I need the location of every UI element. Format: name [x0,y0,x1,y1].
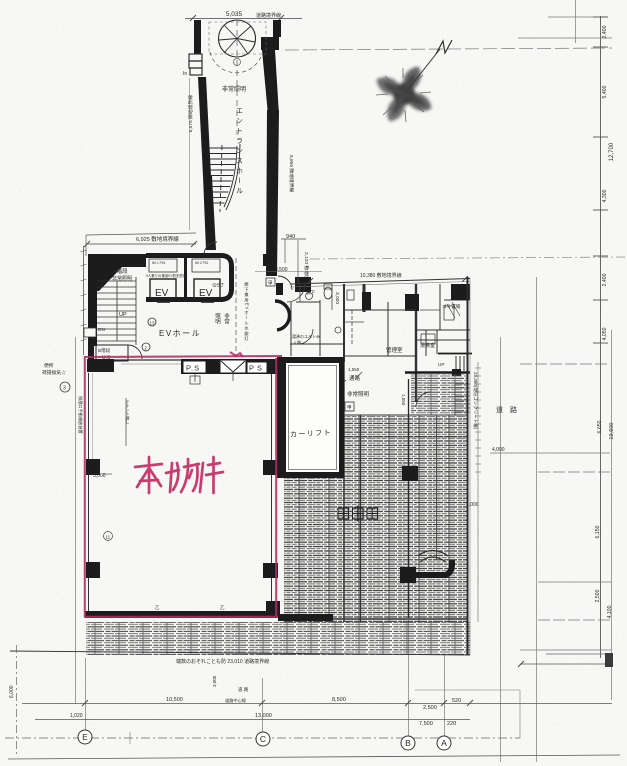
svg-text:3: 3 [63,386,66,392]
svg-text:乙: 乙 [155,604,160,610]
svg-text:テナント渡し: テナント渡し [126,399,131,424]
svg-text:A: A [441,738,447,748]
svg-text:2,400: 2,400 [602,25,608,38]
svg-text:2,400: 2,400 [602,273,608,286]
svg-text:6,650: 6,650 [597,420,603,433]
svg-text:4,300: 4,300 [602,189,608,202]
svg-text:7,500: 7,500 [419,721,433,727]
svg-text:2,500: 2,500 [595,589,601,602]
svg-text:EV: EV [155,288,169,299]
svg-text:A階段: A階段 [113,267,128,275]
svg-text:9人乗りの乗用EV防犯窓付: 9人乗りの乗用EV防犯窓付 [146,273,187,278]
svg-text:B階段: B階段 [98,347,111,354]
svg-text:N0.2 P15: N0.2 P15 [195,261,209,265]
svg-text:便所: 便所 [44,362,54,369]
svg-text:湯沸のユルトみ: 湯沸のユルトみ [292,333,320,339]
svg-text:照明: 照明 [214,313,221,326]
svg-text:In: In [183,71,187,77]
svg-text:非常: 非常 [223,312,230,326]
svg-text:4,100: 4,100 [607,605,613,618]
svg-text:E: E [82,732,88,742]
svg-text:排煙口手動開放装置: 排煙口手動開放装置 [77,396,84,434]
svg-text:1,550: 1,550 [401,394,406,406]
svg-text:廊下兼用EVホール水銀灯: 廊下兼用EVホール水銀灯 [244,281,250,342]
svg-text:4,000: 4,000 [492,447,505,453]
svg-text:3,500: 3,500 [275,267,288,273]
svg-text:湯沸室: 湯沸室 [420,342,435,349]
svg-text:UP: UP [438,362,444,367]
svg-text:23,380(現況コンクリート塀): 23,380(現況コンクリート塀) [472,372,479,430]
svg-text:2,500: 2,500 [423,705,437,711]
svg-text:⑤S7: ⑤S7 [212,282,224,289]
svg-text:ゴミ置場: ゴミ置場 [442,303,461,310]
svg-text:6,575 隣地境界線: 6,575 隣地境界線 [187,95,194,133]
svg-text:道路境界線: 道路境界線 [256,12,281,19]
svg-text:B: B [405,738,411,748]
svg-text:道: 道 [496,405,503,414]
svg-text:19,600: 19,600 [609,422,615,439]
svg-text:道 路: 道 路 [238,686,249,693]
svg-text:5,400: 5,400 [602,85,608,98]
svg-text:入隅: 入隅 [293,339,301,345]
svg-text:10,500: 10,500 [166,697,183,703]
svg-text:端数のおそれことも防 23,010 道路境界線: 端数のおそれことも防 23,010 道路境界線 [176,658,269,665]
svg-text:6,000: 6,000 [9,685,15,698]
svg-text:6,150: 6,150 [595,525,601,538]
svg-text:P.S: P.S [186,364,200,373]
svg-text:UP: UP [119,312,127,318]
svg-text:荷揚換気☆: 荷揚換気☆ [42,369,66,376]
svg-text:10,380 敷地境界線: 10,380 敷地境界線 [360,272,402,279]
svg-text:5,035: 5,035 [226,11,243,18]
svg-text:8,500: 8,500 [332,697,346,703]
svg-text:非常照明: 非常照明 [347,390,370,398]
svg-text:3,000: 3,000 [334,292,340,304]
svg-text:5,656 隣地境界線: 5,656 隣地境界線 [288,155,295,193]
svg-text:EVホール: EVホール [159,329,201,338]
svg-text:4,050: 4,050 [602,327,608,340]
svg-text:管理室: 管理室 [386,346,403,354]
svg-text:3,000: 3,000 [212,675,217,687]
svg-text:DN: DN [98,327,105,333]
svg-text:P S: P S [249,364,262,373]
svg-text:6,925 敷地境界線: 6,925 敷地境界線 [136,235,179,243]
svg-text:N0.1 P15: N0.1 P15 [152,261,166,265]
svg-text:路: 路 [510,405,517,414]
svg-text:道路中心線: 道路中心線 [225,697,247,704]
svg-text:非常照明: 非常照明 [222,85,246,93]
svg-text:220: 220 [447,721,456,727]
svg-text:1,550: 1,550 [348,367,360,372]
svg-text:13: 13 [150,321,156,326]
svg-text:乙: 乙 [220,604,225,610]
svg-text:12,700: 12,700 [609,142,615,161]
svg-text:11: 11 [106,535,111,540]
svg-text:EV: EV [199,288,213,299]
svg-text:520: 520 [452,698,461,704]
svg-text:1,020: 1,020 [70,713,83,719]
svg-text:13,000: 13,000 [255,713,272,719]
svg-text:C: C [260,734,266,744]
